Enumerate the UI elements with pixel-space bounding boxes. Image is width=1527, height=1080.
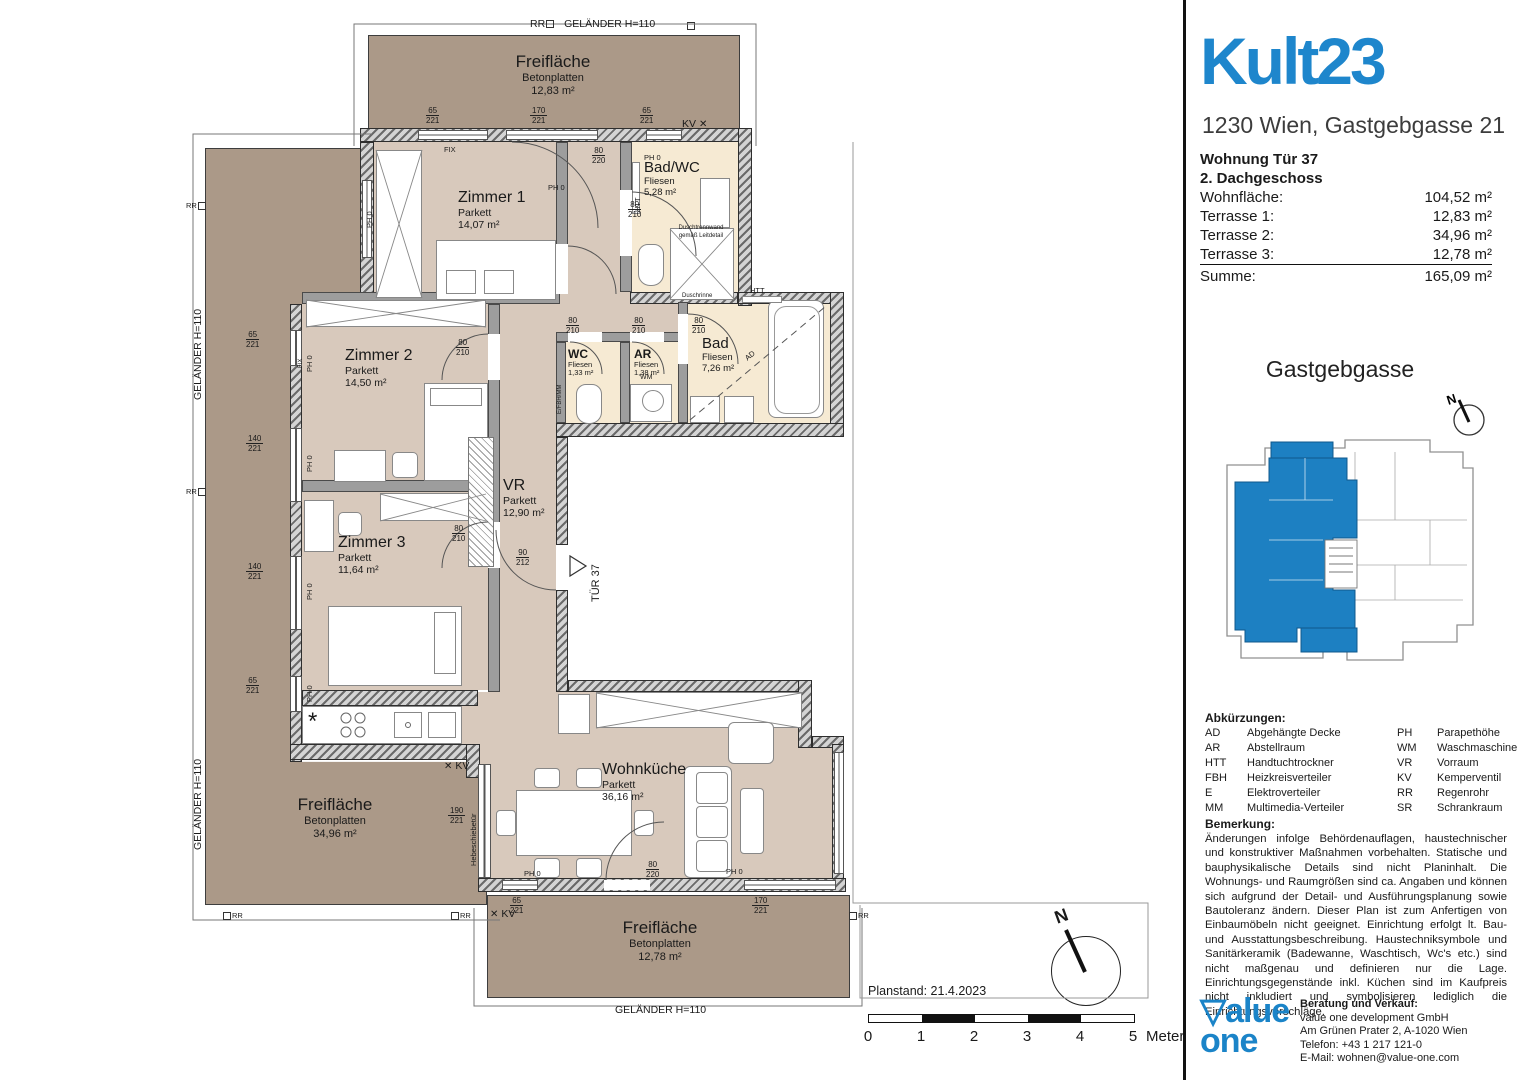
abbreviations-title: Abkürzungen: [1205, 710, 1505, 726]
bathtub-inner [774, 306, 820, 414]
abbreviations-grid: ADAbgehängte DeckePHParapethöhe ARAbstel… [1205, 726, 1505, 816]
remark-block: Bemerkung: Änderungen infolge Behördenau… [1205, 816, 1507, 1019]
label-wc: WC Fliesen 1,33 m² [568, 348, 593, 378]
toilet-wc [576, 384, 602, 424]
contact-line: Am Grünen Prater 2, A-1020 Wien [1300, 1025, 1510, 1039]
wall-z3-bottom [302, 690, 478, 706]
door-gap-bad [678, 314, 688, 364]
info-row-wohnflaeche: Wohnfläche:104,52 m² [1200, 188, 1492, 207]
value-one-logo: ▽alue one [1200, 996, 1289, 1056]
remark-title: Bemerkung: [1205, 816, 1507, 832]
dim-hall-door: 80220 [592, 146, 605, 165]
pillow-zimmer1-a [446, 270, 476, 294]
planstand: Planstand: 21.4.2023 [868, 984, 986, 998]
efbhmm-label: E/FBH/MM [556, 385, 564, 414]
window-wk-bottom-1 [502, 880, 538, 890]
scalebar-tick-4: 4 [1076, 1028, 1084, 1045]
desk-zimmer2 [334, 450, 386, 482]
window-left-4 [290, 676, 302, 712]
info-row-terrasse1: Terrasse 1:12,83 m² [1200, 207, 1492, 226]
contact-title: Beratung und Verkauf: [1300, 998, 1510, 1012]
hebeschiebetuer-label: Hebeschiebetür [470, 813, 478, 866]
ph0-label-5: PH 0 [306, 583, 314, 600]
pillow-zimmer1-b [484, 270, 514, 294]
armchair [728, 722, 774, 764]
kitchen-sink [394, 712, 422, 738]
shelf-vr [468, 437, 494, 567]
window-wk-right [834, 752, 844, 874]
wardrobe-zimmer1 [376, 150, 422, 298]
ph0-label-4: PH 0 [306, 455, 314, 472]
kv-cross-icon: ✕ [490, 909, 498, 920]
washbasin-badwc [700, 178, 730, 228]
svg-text:N: N [1445, 391, 1459, 408]
contact-block: Beratung und Verkauf: value one developm… [1300, 998, 1510, 1066]
chair-zimmer2 [392, 452, 418, 478]
dim-bad-door: 80210 [692, 316, 705, 335]
burner-icon: * [308, 708, 317, 736]
terrace-left-label: Freifläche Betonplatten 34,96 m² [245, 795, 425, 841]
dim-bottom-2: 170221 [752, 896, 769, 915]
window-left-3 [290, 556, 302, 630]
window-top-1 [418, 130, 488, 140]
chair-dining-6 [634, 810, 654, 836]
fix-label-1: FIX [444, 146, 456, 154]
scalebar [868, 1014, 1135, 1023]
window-wk-bottom-2 [744, 880, 836, 890]
washing-machine-drum [642, 390, 664, 412]
kitchen-unit [428, 712, 456, 738]
unit-door: Wohnung Tür 37 [1200, 150, 1492, 169]
window-hebeschiebetuer [478, 764, 491, 878]
wall-vr-right-a [556, 437, 568, 545]
kv-cross-icon: ✕ [444, 761, 452, 772]
project-address: 1230 Wien, Gastgebgasse 21 [1202, 112, 1505, 139]
dim-bottom-1: 65221 [510, 896, 523, 915]
htt-label-bad: HTT [750, 287, 765, 295]
washbasin-bad-2 [724, 396, 754, 423]
door-gap-entrance [556, 545, 568, 590]
chair-dining-1 [534, 768, 560, 788]
desk-zimmer3 [304, 500, 334, 552]
label-zimmer1: Zimmer 1 Parkett 14,07 m² [458, 190, 526, 231]
info-row-terrasse2: Terrasse 2:34,96 m² [1200, 226, 1492, 245]
label-bad: Bad Fliesen 7,26 m² [702, 336, 734, 374]
abbreviations: Abkürzungen: ADAbgehängte DeckePHParapet… [1205, 710, 1505, 816]
pillow-zimmer3 [434, 612, 456, 674]
contact-line: Telefon: +43 1 217 121-0 [1300, 1039, 1510, 1053]
door-gap-terrace3 [604, 880, 650, 890]
duschrinne-label: Duschrinne [682, 292, 712, 300]
contact-line: E-Mail: wohnen@value-one.com [1300, 1052, 1510, 1066]
wall-sanitary-bottom [556, 423, 844, 437]
wall-wk-top [568, 680, 802, 692]
dim-z3-door: 80210 [452, 524, 465, 543]
ph0-label-2: PH 0 [644, 154, 661, 162]
window-top-3 [646, 130, 682, 140]
wall-z2-z3 [302, 480, 488, 492]
closet-zimmer2 [306, 300, 486, 327]
chair-dining-5 [496, 810, 516, 836]
ph0-label-7: PH 0 [366, 211, 374, 228]
tuer37-label: TÜR 37 [592, 564, 600, 602]
dim-top-1: 65221 [426, 106, 439, 125]
siteplan: N [1205, 390, 1505, 680]
duschtrennwand-label: Duschtrennwandgemäß Leitdetail [666, 224, 736, 240]
scalebar-tick-5: 5 [1129, 1028, 1137, 1045]
rr-marker-bottom-mid: RR [450, 912, 471, 920]
sofa-cushion-3 [696, 840, 728, 872]
column-wohnkueche [558, 694, 590, 734]
kv-label-kitchen: ✕ KV [444, 760, 469, 772]
scalebar-tick-3: 3 [1023, 1028, 1031, 1045]
htt-bad [742, 296, 782, 303]
dim-badwc-door: 80210 [628, 200, 641, 219]
rr-marker-left-top: RR [186, 202, 207, 210]
info-row-terrasse3: Terrasse 3:12,78 m² [1200, 245, 1492, 265]
dim-left-2: 140221 [246, 434, 263, 453]
wall-bad-right [830, 292, 844, 437]
railing-top-label: RR GELÄNDER H=110 [530, 18, 655, 30]
dim-left-1: 65221 [246, 330, 259, 349]
scalebar-tick-2: 2 [970, 1028, 978, 1045]
rr-marker-bottom-right: RR [848, 912, 869, 920]
dim-wc-door: 80210 [566, 316, 579, 335]
dim-entrance: 90212 [516, 548, 529, 567]
dim-left-3: 140221 [246, 562, 263, 581]
wall-vr-right-b [556, 590, 568, 692]
wm-label: WM [640, 374, 652, 382]
compass-north-label: N [1052, 904, 1071, 928]
ph0-label-8: PH 0 [524, 870, 541, 878]
wall-kitchen-bottom [290, 744, 480, 760]
railing-bottom-label: GELÄNDER H=110 [615, 1004, 706, 1016]
wall-badwc-right [738, 128, 752, 306]
coffee-table [740, 788, 764, 854]
unit-floor: 2. Dachgeschoss [1200, 169, 1492, 188]
kv-cross-icon: ✕ [699, 119, 707, 130]
compass-circle [1051, 936, 1121, 1006]
dim-ar-door: 80210 [632, 316, 645, 335]
terrace-top-label: Freifläche Betonplatten 12,83 m² [473, 52, 633, 98]
door-gap-z2 [488, 334, 500, 380]
scalebar-tick-0: 0 [864, 1028, 872, 1045]
washbasin-bad-1 [690, 396, 720, 423]
scalebar-unit: Meter [1146, 1028, 1184, 1045]
wall-wc-ar [620, 342, 630, 423]
panel-divider [1183, 0, 1186, 1080]
sofa-cushion-2 [696, 806, 728, 838]
rr-box-icon-top-right [687, 22, 695, 30]
chair-dining-2 [576, 768, 602, 788]
dim-z2-door: 80210 [456, 338, 469, 357]
contact-line: value one development GmbH [1300, 1012, 1510, 1026]
fix-label-2: FIX [297, 359, 305, 368]
rr-box-icon [546, 20, 554, 28]
label-zimmer3: Zimmer 3 Parkett 11,64 m² [338, 535, 406, 576]
door-gap-z1 [556, 244, 568, 294]
dim-top-3: 65221 [640, 106, 653, 125]
label-zimmer2: Zimmer 2 Parkett 14,50 m² [345, 348, 413, 389]
ph0-label-9: PH 0 [726, 868, 743, 876]
plan-sheet: Freifläche Betonplatten 12,83 m² Freiflä… [0, 0, 1527, 1080]
ph0-label-6: PH 0 [306, 685, 314, 702]
dim-hebe: 190221 [448, 806, 465, 825]
window-top-2 [506, 130, 598, 140]
siteplan-title: Gastgebgasse [1220, 356, 1460, 383]
ph0-label-1: PH 0 [548, 184, 565, 192]
railing-left-upper-label: GELÄNDER H=110 [192, 309, 204, 400]
dim-terrace3-door: 80220 [646, 860, 659, 879]
project-title: Kult23 [1200, 28, 1384, 94]
terrace-bottom-label: Freifläche Betonplatten 12,78 m² [575, 918, 745, 964]
label-badwc: Bad/WC Fliesen 5,28 m² [644, 160, 700, 198]
chair-dining-4 [576, 858, 602, 878]
kv-label-top: KV ✕ [682, 118, 707, 130]
unit-info: Wohnung Tür 37 2. Dachgeschoss Wohnfläch… [1200, 150, 1492, 286]
rr-marker-left-mid: RR [186, 488, 207, 496]
pillow-zimmer2 [430, 388, 482, 406]
info-row-summe: Summe:165,09 m² [1200, 265, 1492, 286]
label-wohnkueche: Wohnküche Parkett 36,16 m² [602, 762, 686, 803]
chair-zimmer3 [338, 512, 362, 536]
railing-left-lower-label: GELÄNDER H=110 [192, 759, 204, 850]
window-left-2 [290, 428, 302, 502]
dim-left-4: 65221 [246, 676, 259, 695]
label-vr: VR Parkett 12,90 m² [503, 478, 544, 519]
dim-top-2: 170221 [530, 106, 547, 125]
toilet-badwc [638, 244, 664, 286]
scalebar-tick-1: 1 [917, 1028, 925, 1045]
ph0-label-3: PH 0 [306, 355, 314, 372]
sofa-cushion-1 [696, 772, 728, 804]
rr-marker-bottom-left: RR [222, 912, 243, 920]
